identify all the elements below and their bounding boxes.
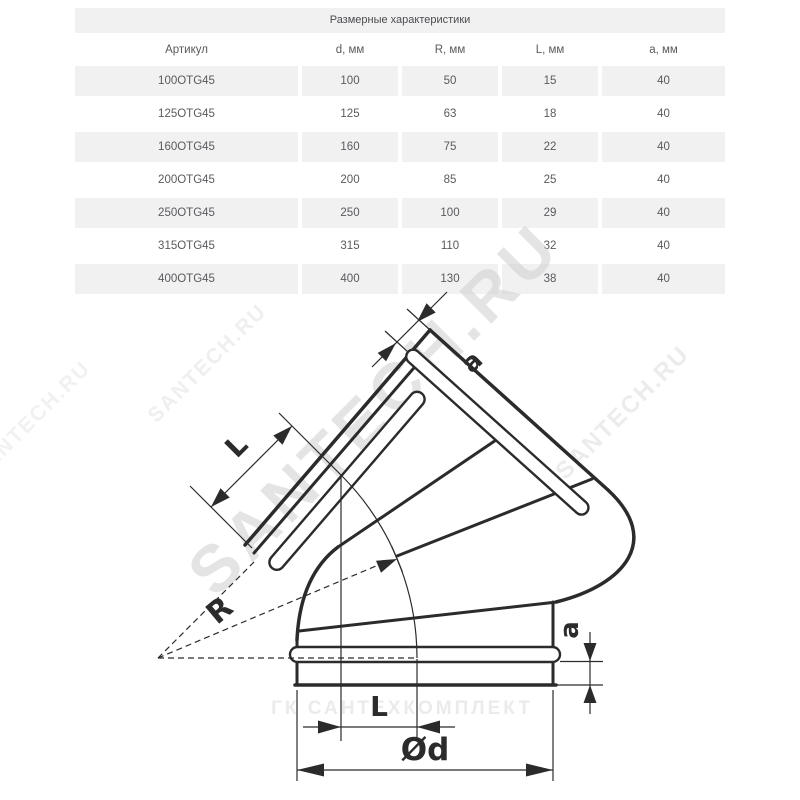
end-bead xyxy=(403,347,591,518)
bottom-pipe xyxy=(290,602,560,685)
label-diameter: Ød xyxy=(401,732,450,768)
watermark-brand: ГК САНТЕХКОМПЛЕКТ xyxy=(271,698,533,719)
radius-arrowhead xyxy=(376,559,397,573)
outer-curve xyxy=(556,490,634,602)
upper-wall xyxy=(245,330,430,545)
label-length-top: L xyxy=(218,428,254,464)
watermark-layer: SANTECH.RU SANTECH.RU SANTECH.RU SANTECH… xyxy=(0,208,695,719)
label-lip-right: a xyxy=(555,621,585,639)
label-length-bottom: L xyxy=(370,690,388,723)
bottom-bead xyxy=(290,647,560,662)
gore-seam-1 xyxy=(299,602,557,631)
product-dimensions-page: Размерные характеристики Артикул d, мм R… xyxy=(0,0,800,800)
watermark-main: SANTECH.RU xyxy=(173,208,574,609)
elbow-technical-drawing: SANTECH.RU SANTECH.RU SANTECH.RU SANTECH… xyxy=(0,0,800,800)
dim-lip-right xyxy=(556,632,603,714)
watermark-topleft: SANTECH.RU xyxy=(144,300,272,428)
watermark-left: SANTECH.RU xyxy=(0,357,95,485)
watermark-right: SANTECH.RU xyxy=(550,340,694,484)
radius-ray-mid xyxy=(158,566,376,658)
